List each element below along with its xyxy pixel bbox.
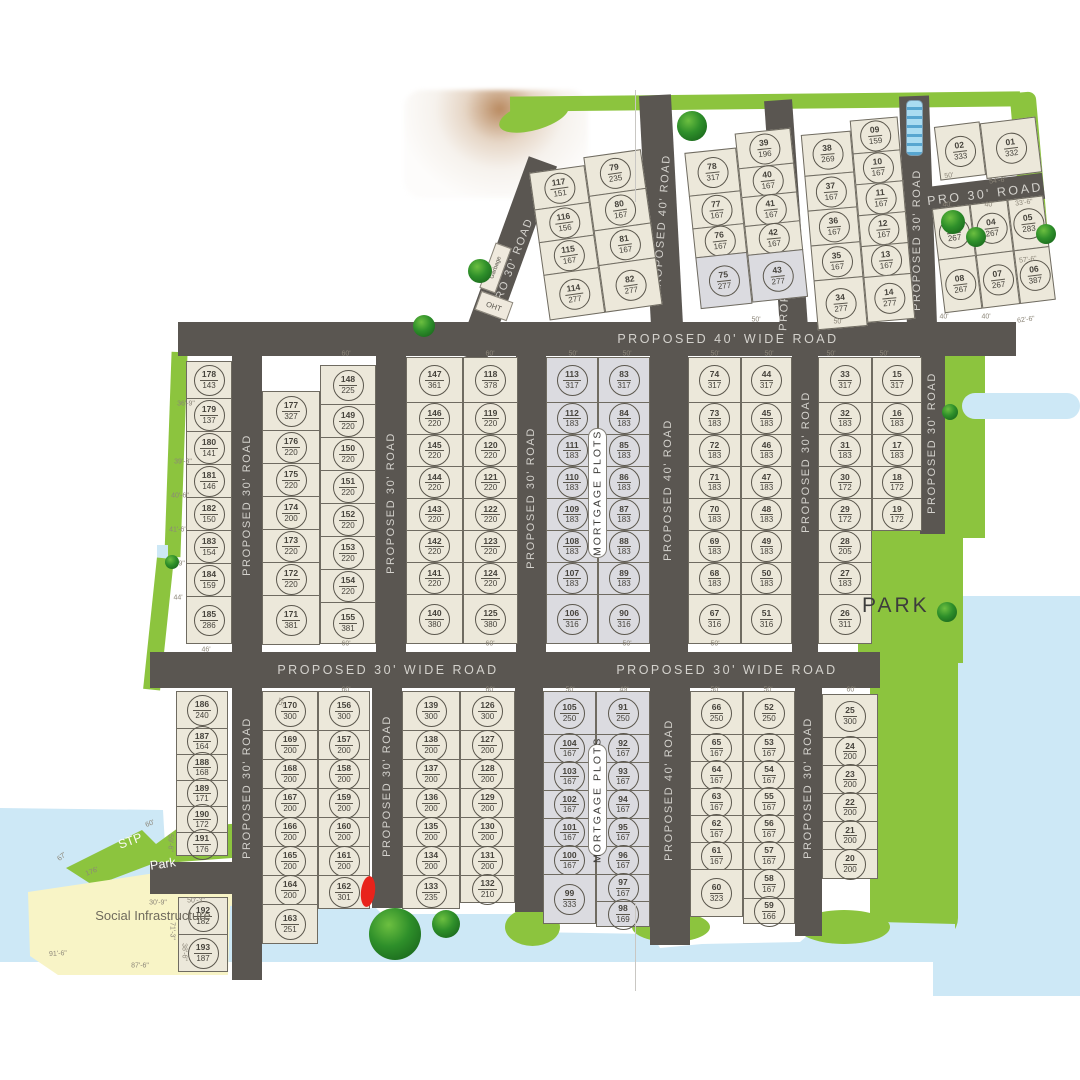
plot-107[interactable]: 107183 — [546, 562, 598, 595]
plot-48[interactable]: 48183 — [741, 498, 792, 531]
plot-area: 220 — [484, 515, 497, 524]
plot-area: 143 — [202, 381, 215, 390]
plot-83[interactable]: 83317 — [598, 357, 650, 403]
plot-43[interactable]: 43277 — [747, 249, 808, 303]
plot-area: 167 — [871, 168, 885, 178]
plot-circle: 32183 — [830, 403, 861, 434]
plot-area: 183 — [760, 579, 773, 588]
plot-circle: 18172 — [882, 467, 913, 498]
plot-number: 90 — [617, 609, 630, 620]
plot-144[interactable]: 144220 — [406, 466, 463, 499]
plot-158[interactable]: 158200 — [318, 759, 370, 789]
plot-number: 146 — [425, 409, 443, 420]
plot-area: 167 — [616, 889, 629, 898]
plot-187[interactable]: 187164 — [176, 728, 228, 755]
plot-area: 183 — [708, 515, 721, 524]
plot-137[interactable]: 137200 — [402, 759, 460, 789]
plot-number: 145 — [425, 441, 443, 452]
plot-185[interactable]: 185286 — [186, 596, 232, 644]
plot-circle: 156300 — [329, 696, 360, 727]
plot-27[interactable]: 27183 — [818, 562, 872, 595]
plot-154[interactable]: 154220 — [320, 569, 376, 603]
plot-118[interactable]: 118378 — [463, 357, 518, 403]
plot-circle: 78317 — [695, 155, 729, 189]
plot-circle: 74317 — [699, 365, 730, 396]
plot-181[interactable]: 181146 — [186, 464, 232, 498]
plot-170[interactable]: 170300 — [262, 691, 318, 731]
plot-number: 179 — [200, 405, 218, 416]
plot-number: 104 — [560, 739, 578, 750]
plot-148[interactable]: 148225 — [320, 365, 376, 405]
plot-17[interactable]: 17183 — [872, 434, 922, 467]
plot-151[interactable]: 151220 — [320, 470, 376, 504]
dimension-label: 36'-9" — [177, 401, 195, 408]
plot-73[interactable]: 73183 — [688, 402, 741, 435]
plot-125[interactable]: 125380 — [463, 594, 518, 644]
mortgage-plots-badge-upper: MORTGAGE PLOTS — [588, 428, 607, 558]
plot-circle: 62167 — [701, 814, 732, 845]
plot-circle: 113317 — [557, 365, 588, 396]
plot-number: 55 — [762, 792, 775, 803]
plot-circle: 169200 — [275, 730, 306, 761]
plot-area: 380 — [428, 620, 441, 629]
plot-173[interactable]: 173220 — [262, 529, 320, 563]
plot-number: 103 — [560, 767, 578, 778]
plot-33[interactable]: 33317 — [818, 357, 872, 403]
plot-area: 167 — [713, 241, 727, 252]
plot-area: 167 — [710, 776, 723, 785]
plot-circle: 15317 — [882, 365, 913, 396]
plot-161[interactable]: 161200 — [318, 846, 370, 876]
plot-circle: 69183 — [699, 531, 730, 562]
plot-08[interactable]: 08267 — [938, 255, 982, 313]
plot-44[interactable]: 44317 — [741, 357, 792, 403]
plot-area: 317 — [838, 381, 851, 390]
plot-130[interactable]: 130200 — [460, 817, 515, 847]
plot-area: 156 — [558, 222, 573, 233]
plot-07[interactable]: 07267 — [976, 250, 1020, 308]
plot-70[interactable]: 70183 — [688, 498, 741, 531]
plot-32[interactable]: 32183 — [818, 402, 872, 435]
plot-38[interactable]: 38269 — [801, 131, 854, 177]
plot-166[interactable]: 166200 — [262, 817, 318, 847]
plot-circle: 125380 — [475, 604, 506, 635]
plot-72[interactable]: 72183 — [688, 434, 741, 467]
plot-186[interactable]: 186240 — [176, 691, 228, 729]
plot-circle: 101167 — [554, 817, 585, 848]
plot-142[interactable]: 142220 — [406, 530, 463, 563]
plot-area: 220 — [284, 448, 297, 457]
plot-number: 54 — [762, 765, 775, 776]
plot-area: 277 — [717, 281, 731, 292]
road-label: PROPOSED 30' ROAD — [385, 432, 397, 574]
plot-circle: 23200 — [835, 764, 866, 795]
plot-area: 317 — [617, 381, 630, 390]
plot-36[interactable]: 36167 — [807, 206, 860, 246]
plot-area: 183 — [760, 419, 773, 428]
plot-number: 163 — [281, 914, 299, 925]
plot-31[interactable]: 31183 — [818, 434, 872, 467]
plot-176[interactable]: 176220 — [262, 430, 320, 464]
plot-145[interactable]: 145220 — [406, 434, 463, 467]
plot-132[interactable]: 132210 — [460, 875, 515, 903]
plot-58[interactable]: 58167 — [743, 869, 795, 899]
plot-84[interactable]: 84183 — [598, 402, 650, 435]
plot-90[interactable]: 90316 — [598, 594, 650, 644]
plot-46[interactable]: 46183 — [741, 434, 792, 467]
plot-area: 183 — [565, 451, 578, 460]
plot-68[interactable]: 68183 — [688, 562, 741, 595]
plot-area: 167 — [618, 244, 633, 255]
plot-66[interactable]: 66250 — [690, 691, 743, 735]
plot-122[interactable]: 122220 — [463, 498, 518, 531]
plot-area: 172 — [838, 483, 851, 492]
plot-180[interactable]: 180141 — [186, 431, 232, 465]
plot-126[interactable]: 126300 — [460, 691, 515, 731]
plot-182[interactable]: 182150 — [186, 497, 232, 531]
plot-number: 167 — [281, 793, 299, 804]
plot-16[interactable]: 16183 — [872, 402, 922, 435]
plot-63[interactable]: 63167 — [690, 788, 743, 816]
plot-circle: 60323 — [701, 878, 732, 909]
plot-area: 283 — [1022, 223, 1036, 234]
plot-number: 129 — [478, 793, 496, 804]
plot-74[interactable]: 74317 — [688, 357, 741, 403]
plot-area: 300 — [283, 712, 296, 721]
plot-169[interactable]: 169200 — [262, 730, 318, 760]
plot-105[interactable]: 105250 — [543, 691, 596, 735]
plot-127[interactable]: 127200 — [460, 730, 515, 760]
plot-89[interactable]: 89183 — [598, 562, 650, 595]
plot-circle: 71183 — [699, 467, 730, 498]
plot-62[interactable]: 62167 — [690, 815, 743, 843]
plot-156[interactable]: 156300 — [318, 691, 370, 731]
plot-circle: 77167 — [699, 193, 733, 227]
plot-area: 316 — [760, 620, 773, 629]
plot-141[interactable]: 141220 — [406, 562, 463, 595]
plot-98[interactable]: 98169 — [596, 901, 650, 927]
plot-121[interactable]: 121220 — [463, 466, 518, 499]
dimension-label: 50' — [826, 351, 835, 358]
plot-150[interactable]: 150220 — [320, 437, 376, 471]
plot-78[interactable]: 78317 — [684, 147, 740, 196]
plot-57[interactable]: 57167 — [743, 842, 795, 870]
plot-21[interactable]: 21200 — [822, 821, 878, 850]
plot-60[interactable]: 60323 — [690, 869, 743, 917]
plot-number: 168 — [281, 764, 299, 775]
plot-45[interactable]: 45183 — [741, 402, 792, 435]
plot-174[interactable]: 174200 — [262, 496, 320, 530]
plot-65[interactable]: 65167 — [690, 734, 743, 762]
plot-163[interactable]: 163251 — [262, 904, 318, 944]
plot-number: 134 — [422, 851, 440, 862]
plot-area: 277 — [568, 294, 583, 305]
plot-165[interactable]: 165200 — [262, 846, 318, 876]
plot-number: 112 — [563, 409, 581, 420]
dimension-label: 40' — [984, 202, 993, 209]
tree-icon — [937, 602, 957, 622]
plot-49[interactable]: 49183 — [741, 530, 792, 563]
plot-circle: 90316 — [609, 604, 640, 635]
plot-number: 127 — [478, 735, 496, 746]
plot-146[interactable]: 146220 — [406, 402, 463, 435]
tree-icon — [966, 227, 986, 247]
plot-circle: 82277 — [613, 267, 648, 302]
plot-136[interactable]: 136200 — [402, 788, 460, 818]
plot-140[interactable]: 140380 — [406, 594, 463, 644]
plot-139[interactable]: 139300 — [402, 691, 460, 731]
park-area-lower — [870, 645, 958, 940]
plot-120[interactable]: 120220 — [463, 434, 518, 467]
plot-138[interactable]: 138200 — [402, 730, 460, 760]
plot-circle: 111183 — [557, 435, 588, 466]
plot-number: 175 — [282, 470, 300, 481]
plot-number: 65 — [710, 738, 723, 749]
plot-area: 183 — [565, 483, 578, 492]
plot-191[interactable]: 191176 — [176, 832, 228, 856]
plot-54[interactable]: 54167 — [743, 761, 795, 789]
dimension-label: 50' — [622, 641, 631, 648]
plot-15[interactable]: 15317 — [872, 357, 922, 403]
plot-area: 183 — [708, 419, 721, 428]
plot-189[interactable]: 189171 — [176, 780, 228, 807]
plot-97[interactable]: 97167 — [596, 874, 650, 902]
plot-area: 200 — [481, 862, 494, 871]
plot-01[interactable]: 01332 — [980, 117, 1042, 179]
plot-area: 200 — [283, 862, 296, 871]
site-plan: Garbage OHT PARK STP Park Social Infrast… — [0, 0, 1080, 1080]
plot-circle: 137200 — [416, 759, 447, 790]
plot-number: 31 — [838, 441, 851, 452]
plot-area: 200 — [424, 804, 437, 813]
plot-area: 220 — [341, 554, 354, 563]
plot-160[interactable]: 160200 — [318, 817, 370, 847]
plot-number: 135 — [422, 822, 440, 833]
plot-circle: 91250 — [608, 698, 639, 729]
plot-number: 172 — [282, 569, 300, 580]
plot-circle: 110183 — [557, 467, 588, 498]
plot-171[interactable]: 171381 — [262, 595, 320, 645]
plot-area: 381 — [284, 621, 297, 630]
plot-37[interactable]: 37167 — [804, 171, 857, 211]
plot-number: 27 — [838, 569, 851, 580]
plot-number: 100 — [560, 851, 578, 862]
road-label: PROPOSED 30' ROAD — [800, 391, 812, 533]
plot-circle: 72183 — [699, 435, 730, 466]
plot-area: 167 — [710, 210, 724, 221]
plot-number: 58 — [762, 874, 775, 885]
plot-number: 178 — [200, 370, 218, 381]
plot-129[interactable]: 129200 — [460, 788, 515, 818]
plot-circle: 48183 — [751, 499, 782, 530]
plot-22[interactable]: 22200 — [822, 793, 878, 822]
plot-168[interactable]: 168200 — [262, 759, 318, 789]
plot-number: 44 — [760, 370, 773, 381]
plot-area: 167 — [563, 805, 576, 814]
plot-20[interactable]: 20200 — [822, 849, 878, 879]
plot-09[interactable]: 09159 — [850, 116, 901, 154]
plot-number: 119 — [482, 409, 500, 420]
plot-number: 187 — [193, 732, 211, 743]
plot-02[interactable]: 02333 — [934, 121, 986, 180]
plot-circle: 164200 — [275, 875, 306, 906]
plot-124[interactable]: 124220 — [463, 562, 518, 595]
plot-128[interactable]: 128200 — [460, 759, 515, 789]
plot-number: 56 — [762, 819, 775, 830]
plot-number: 188 — [193, 758, 211, 769]
plot-number: 102 — [560, 795, 578, 806]
plot-column: 02333 — [934, 122, 986, 180]
plot-56[interactable]: 56167 — [743, 815, 795, 843]
plot-number: 111 — [563, 441, 580, 452]
plot-123[interactable]: 123220 — [463, 530, 518, 563]
plot-50[interactable]: 50183 — [741, 562, 792, 595]
plot-113[interactable]: 113317 — [546, 357, 598, 403]
plot-area: 200 — [337, 775, 350, 784]
plot-53[interactable]: 53167 — [743, 734, 795, 762]
plot-106[interactable]: 106316 — [546, 594, 598, 644]
plot-number: 180 — [200, 438, 218, 449]
plot-number: 94 — [616, 795, 629, 806]
plot-99[interactable]: 99333 — [543, 874, 596, 924]
plot-147[interactable]: 147361 — [406, 357, 463, 403]
plot-19[interactable]: 19172 — [872, 498, 922, 531]
plot-134[interactable]: 134200 — [402, 846, 460, 876]
plot-circle: 39196 — [747, 132, 781, 166]
plot-circle: 08267 — [943, 267, 978, 302]
plot-119[interactable]: 119220 — [463, 402, 518, 435]
plot-circle: 70183 — [699, 499, 730, 530]
plot-55[interactable]: 55167 — [743, 788, 795, 816]
plot-number: 101 — [560, 823, 578, 834]
plot-circle: 123220 — [475, 531, 506, 562]
plot-number: 49 — [760, 537, 773, 548]
plot-178[interactable]: 178143 — [186, 361, 232, 399]
plot-143[interactable]: 143220 — [406, 498, 463, 531]
plot-184[interactable]: 184159 — [186, 563, 232, 597]
plot-column: 186240187164188168189171190172191176 — [176, 692, 228, 856]
plot-183[interactable]: 183154 — [186, 530, 232, 564]
plot-52[interactable]: 52250 — [743, 691, 795, 735]
plot-number: 120 — [481, 441, 499, 452]
plot-149[interactable]: 149220 — [320, 404, 376, 438]
tree-icon — [1036, 224, 1056, 244]
plot-47[interactable]: 47183 — [741, 466, 792, 499]
plot-30[interactable]: 30172 — [818, 466, 872, 499]
plot-circle: 81167 — [607, 227, 642, 262]
plot-circle: 175220 — [276, 465, 307, 496]
plot-69[interactable]: 69183 — [688, 530, 741, 563]
plot-24[interactable]: 24200 — [822, 737, 878, 766]
plot-159[interactable]: 159200 — [318, 788, 370, 818]
plot-75[interactable]: 75277 — [695, 252, 752, 309]
plot-number: 118 — [482, 370, 500, 381]
plot-area: 167 — [761, 180, 775, 191]
plot-135[interactable]: 135200 — [402, 817, 460, 847]
plot-circle: 45183 — [751, 403, 782, 434]
plot-circle: 181146 — [194, 466, 225, 497]
plot-number: 158 — [335, 764, 353, 775]
plot-number: 107 — [563, 569, 581, 580]
plot-133[interactable]: 133235 — [402, 875, 460, 909]
plot-153[interactable]: 153220 — [320, 536, 376, 570]
dimension-label: 60' — [341, 641, 350, 648]
plot-number: 67 — [708, 609, 721, 620]
plot-64[interactable]: 64167 — [690, 761, 743, 789]
plot-175[interactable]: 175220 — [262, 463, 320, 497]
plot-area: 317 — [708, 381, 721, 390]
plot-area: 200 — [283, 775, 296, 784]
dimension-label: 60' — [485, 641, 494, 648]
plot-177[interactable]: 177327 — [262, 391, 320, 431]
plot-area: 220 — [341, 587, 354, 596]
plot-number: 19 — [890, 505, 903, 516]
dimension-label: 50' — [833, 319, 842, 326]
plot-number: 176 — [282, 437, 300, 448]
plot-number: 62 — [710, 819, 723, 830]
plot-157[interactable]: 157200 — [318, 730, 370, 760]
plot-172[interactable]: 172220 — [262, 562, 320, 596]
plot-area: 200 — [843, 780, 856, 789]
plot-188[interactable]: 188168 — [176, 754, 228, 781]
plot-152[interactable]: 152220 — [320, 503, 376, 537]
plot-51[interactable]: 51316 — [741, 594, 792, 644]
plot-18[interactable]: 18172 — [872, 466, 922, 499]
plot-82[interactable]: 82277 — [598, 257, 662, 313]
plot-114[interactable]: 114277 — [543, 267, 605, 320]
plot-29[interactable]: 29172 — [818, 498, 872, 531]
plot-71[interactable]: 71183 — [688, 466, 741, 499]
plot-area: 183 — [890, 451, 903, 460]
plot-14[interactable]: 14277 — [863, 273, 915, 323]
plot-91[interactable]: 91250 — [596, 691, 650, 735]
plot-164[interactable]: 164200 — [262, 875, 318, 905]
plot-number: 50 — [760, 569, 773, 580]
plot-circle: 10167 — [861, 151, 895, 185]
plot-67[interactable]: 67316 — [688, 594, 741, 644]
plot-circle: 21200 — [835, 820, 866, 851]
plot-circle: 172220 — [276, 564, 307, 595]
mortgage-plots-badge-lower: MORTGAGE PLOTS — [588, 744, 607, 856]
plot-area: 146 — [202, 482, 215, 491]
dimension-label: 46' — [201, 647, 210, 654]
plot-25[interactable]: 25300 — [822, 694, 878, 738]
plot-area: 183 — [617, 483, 630, 492]
plot-circle: 16183 — [882, 403, 913, 434]
plot-column: 1482251492201502201512201522201532201542… — [320, 366, 376, 644]
plot-area: 183 — [708, 483, 721, 492]
plot-59[interactable]: 59166 — [743, 898, 795, 924]
dimension-label: 60' — [485, 687, 494, 694]
plot-35[interactable]: 35167 — [810, 241, 863, 281]
plot-number: 57 — [762, 846, 775, 857]
plot-number: 98 — [616, 904, 629, 915]
plot-number: 68 — [708, 569, 721, 580]
plot-131[interactable]: 131200 — [460, 846, 515, 876]
plot-28[interactable]: 28205 — [818, 530, 872, 563]
plot-167[interactable]: 167200 — [262, 788, 318, 818]
plot-155[interactable]: 155381 — [320, 602, 376, 644]
plot-61[interactable]: 61167 — [690, 842, 743, 870]
plot-23[interactable]: 23200 — [822, 765, 878, 794]
plot-circle: 34277 — [824, 286, 858, 320]
plot-number: 61 — [710, 846, 723, 857]
plot-circle: 185286 — [194, 605, 225, 636]
plot-area: 220 — [428, 515, 441, 524]
plot-circle: 09159 — [858, 119, 892, 153]
plot-number: 53 — [762, 738, 775, 749]
plot-number: 99 — [563, 889, 576, 900]
